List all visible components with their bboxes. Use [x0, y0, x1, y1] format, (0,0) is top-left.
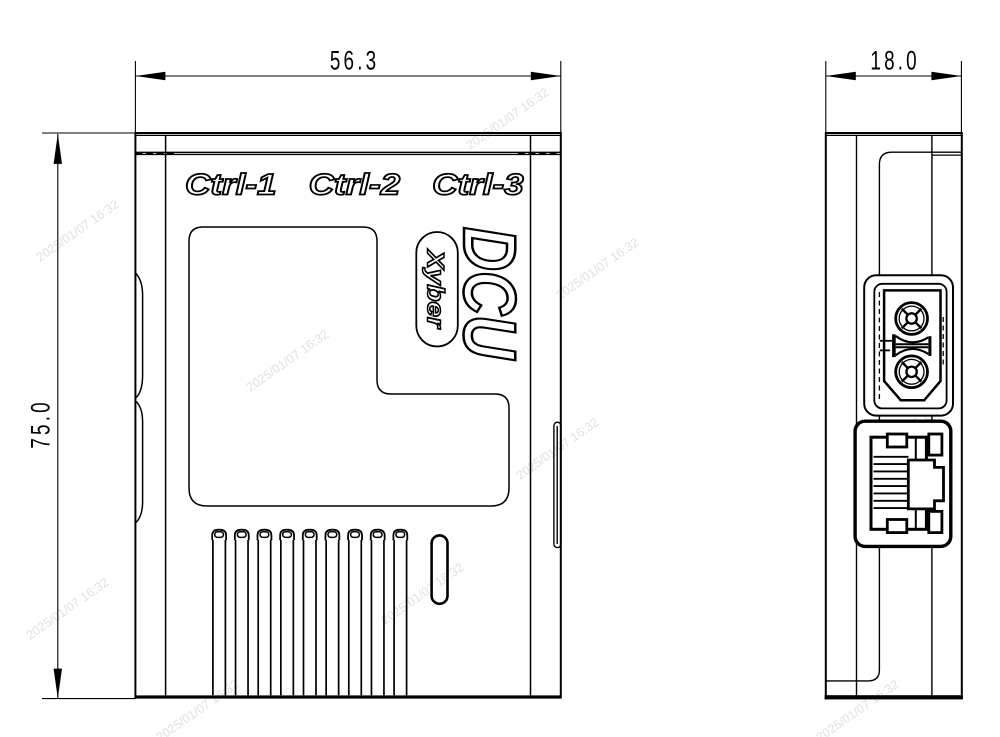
svg-text:75.0: 75.0: [25, 399, 55, 448]
svg-text:Ctrl-2: Ctrl-2: [309, 168, 400, 201]
svg-text:Ctrl-3: Ctrl-3: [432, 168, 523, 201]
svg-text:56.3: 56.3: [330, 45, 379, 75]
svg-text:Xyber: Xyber: [422, 248, 449, 330]
svg-text:Ctrl-1: Ctrl-1: [185, 168, 276, 201]
svg-text:DCU: DCU: [448, 227, 530, 361]
svg-text:18.0: 18.0: [870, 45, 919, 75]
